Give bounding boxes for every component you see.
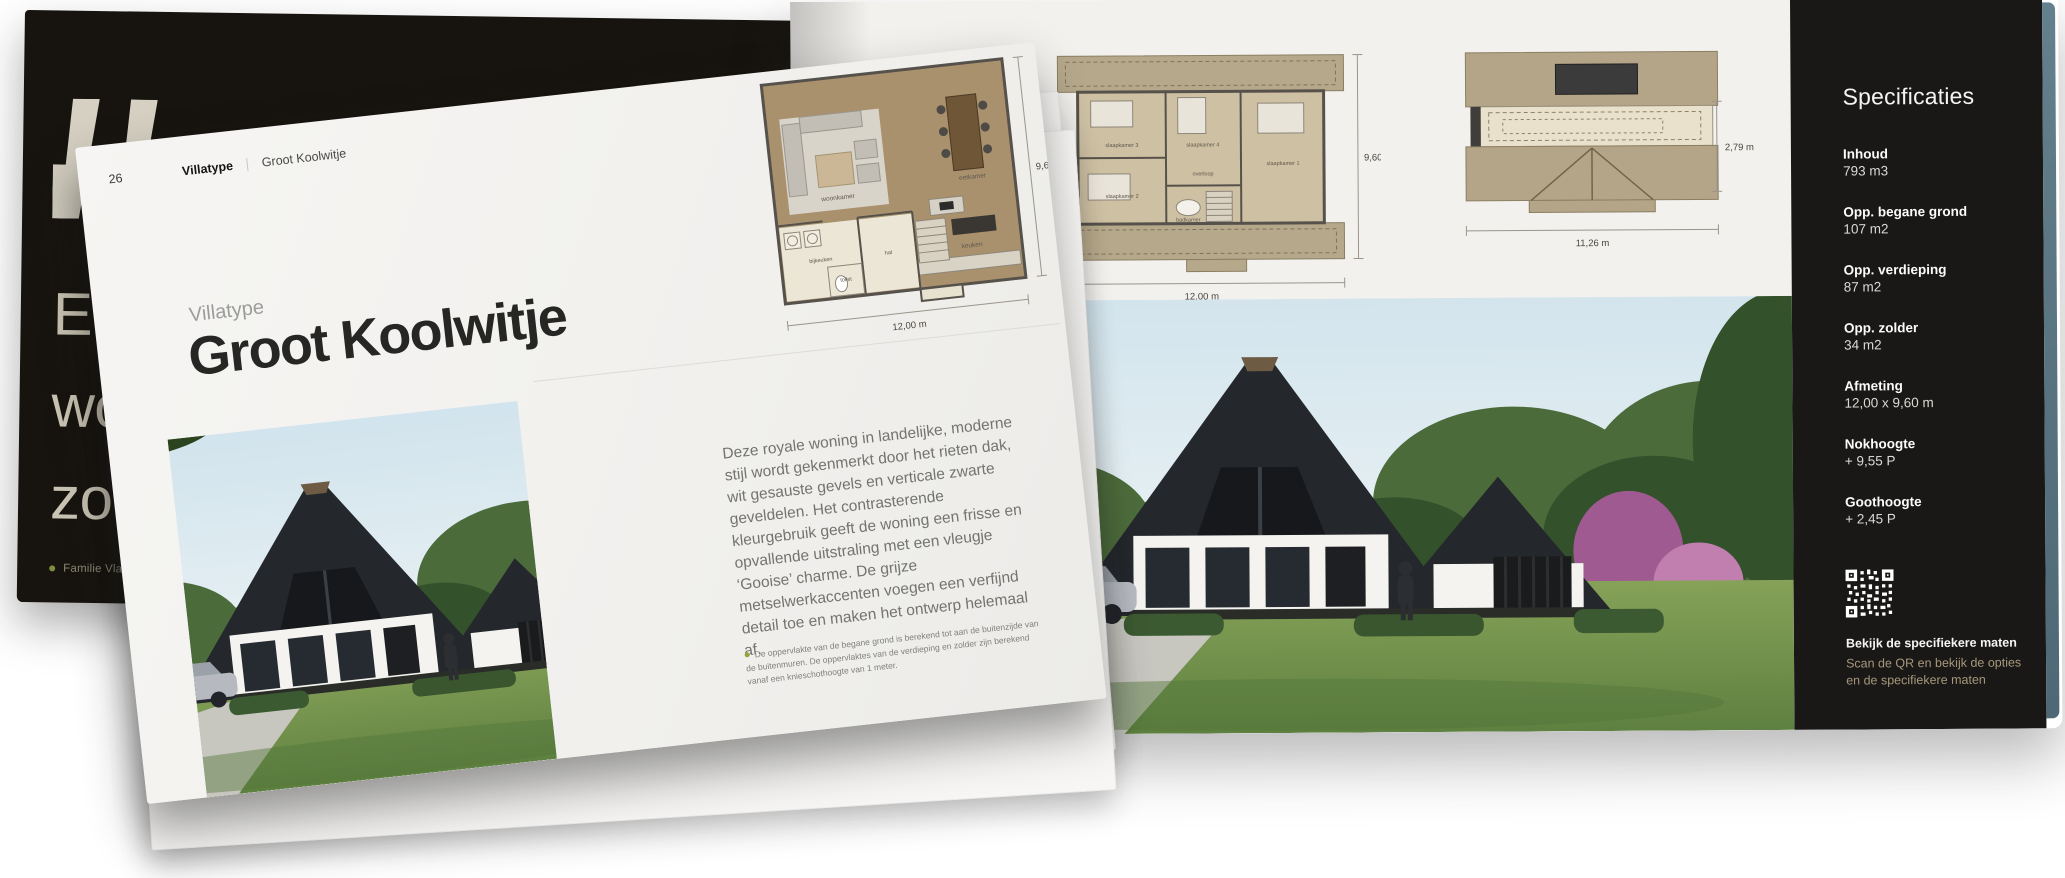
specs-title: Specificaties [1843, 83, 1975, 111]
header-section: Villatype [181, 159, 233, 179]
floorplan-verdieping: slaapkamer 3 slaapkamer 4 slaapkamer 1 s… [1035, 44, 1382, 308]
room-label: overloop [1192, 171, 1213, 177]
room-label: hal [884, 250, 892, 257]
specs-panel: Specificaties Inhoud 793 m3 Opp. begane … [1790, 0, 2046, 730]
dim-width-ground: 12,00 m [892, 319, 927, 334]
qr-heading: Bekijk de specifiekere maten [1846, 635, 2021, 650]
spec-item: Opp. zolder 34 m2 [1844, 318, 2029, 353]
floorplan-ground: woonkamer eetkamer keuken bijkeuken hal … [746, 45, 1079, 349]
qr-subtext-line1: Scan de QR en bekijk de opties [1846, 654, 2026, 672]
qr-subtext-line2: en de specifiekere maten [1846, 671, 2026, 689]
header-title: Groot Koolwitje [261, 146, 347, 169]
page-number: 26 [108, 171, 123, 186]
dim-width-roof: 11,26 m [1576, 238, 1610, 249]
room-label: slaapkamer 3 [1105, 143, 1138, 149]
dim-height-roof: 2,79 m [1725, 142, 1754, 153]
bullet-icon [49, 565, 55, 571]
spec-item: Opp. begane grond 107 m2 [1843, 202, 2028, 237]
room-label: slaapkamer 1 [1266, 161, 1299, 167]
room-label: badkamer [1176, 217, 1201, 223]
brochure-mockup: En wo zou Familie Vlaar - Villatype [0, 0, 2065, 878]
bullet-icon [744, 652, 750, 658]
spec-item: Goothoogte + 2,45 P [1845, 492, 2030, 527]
villa-photo-small [168, 401, 557, 797]
page-header: 26 Villatype Groot Koolwitje [108, 146, 347, 186]
spec-item: Nokhoogte + 9,55 P [1845, 434, 2030, 469]
spec-item: Opp. verdieping 87 m2 [1844, 260, 2029, 295]
dim-height-verdieping: 9,60 m [1364, 152, 1382, 163]
spec-item: Inhoud 793 m3 [1843, 144, 2028, 179]
header-divider [246, 158, 248, 171]
floorplan-roof: 11,26 m 2,79 m [1430, 43, 1761, 261]
qr-code [1845, 569, 1893, 617]
room-label: slaapkamer 2 [1106, 194, 1139, 200]
room-label: slaapkamer 4 [1186, 142, 1219, 148]
front-page: 26 Villatype Groot Koolwitje [75, 42, 1107, 804]
spec-item: Afmeting 12,00 x 9,60 m [1844, 376, 2029, 411]
